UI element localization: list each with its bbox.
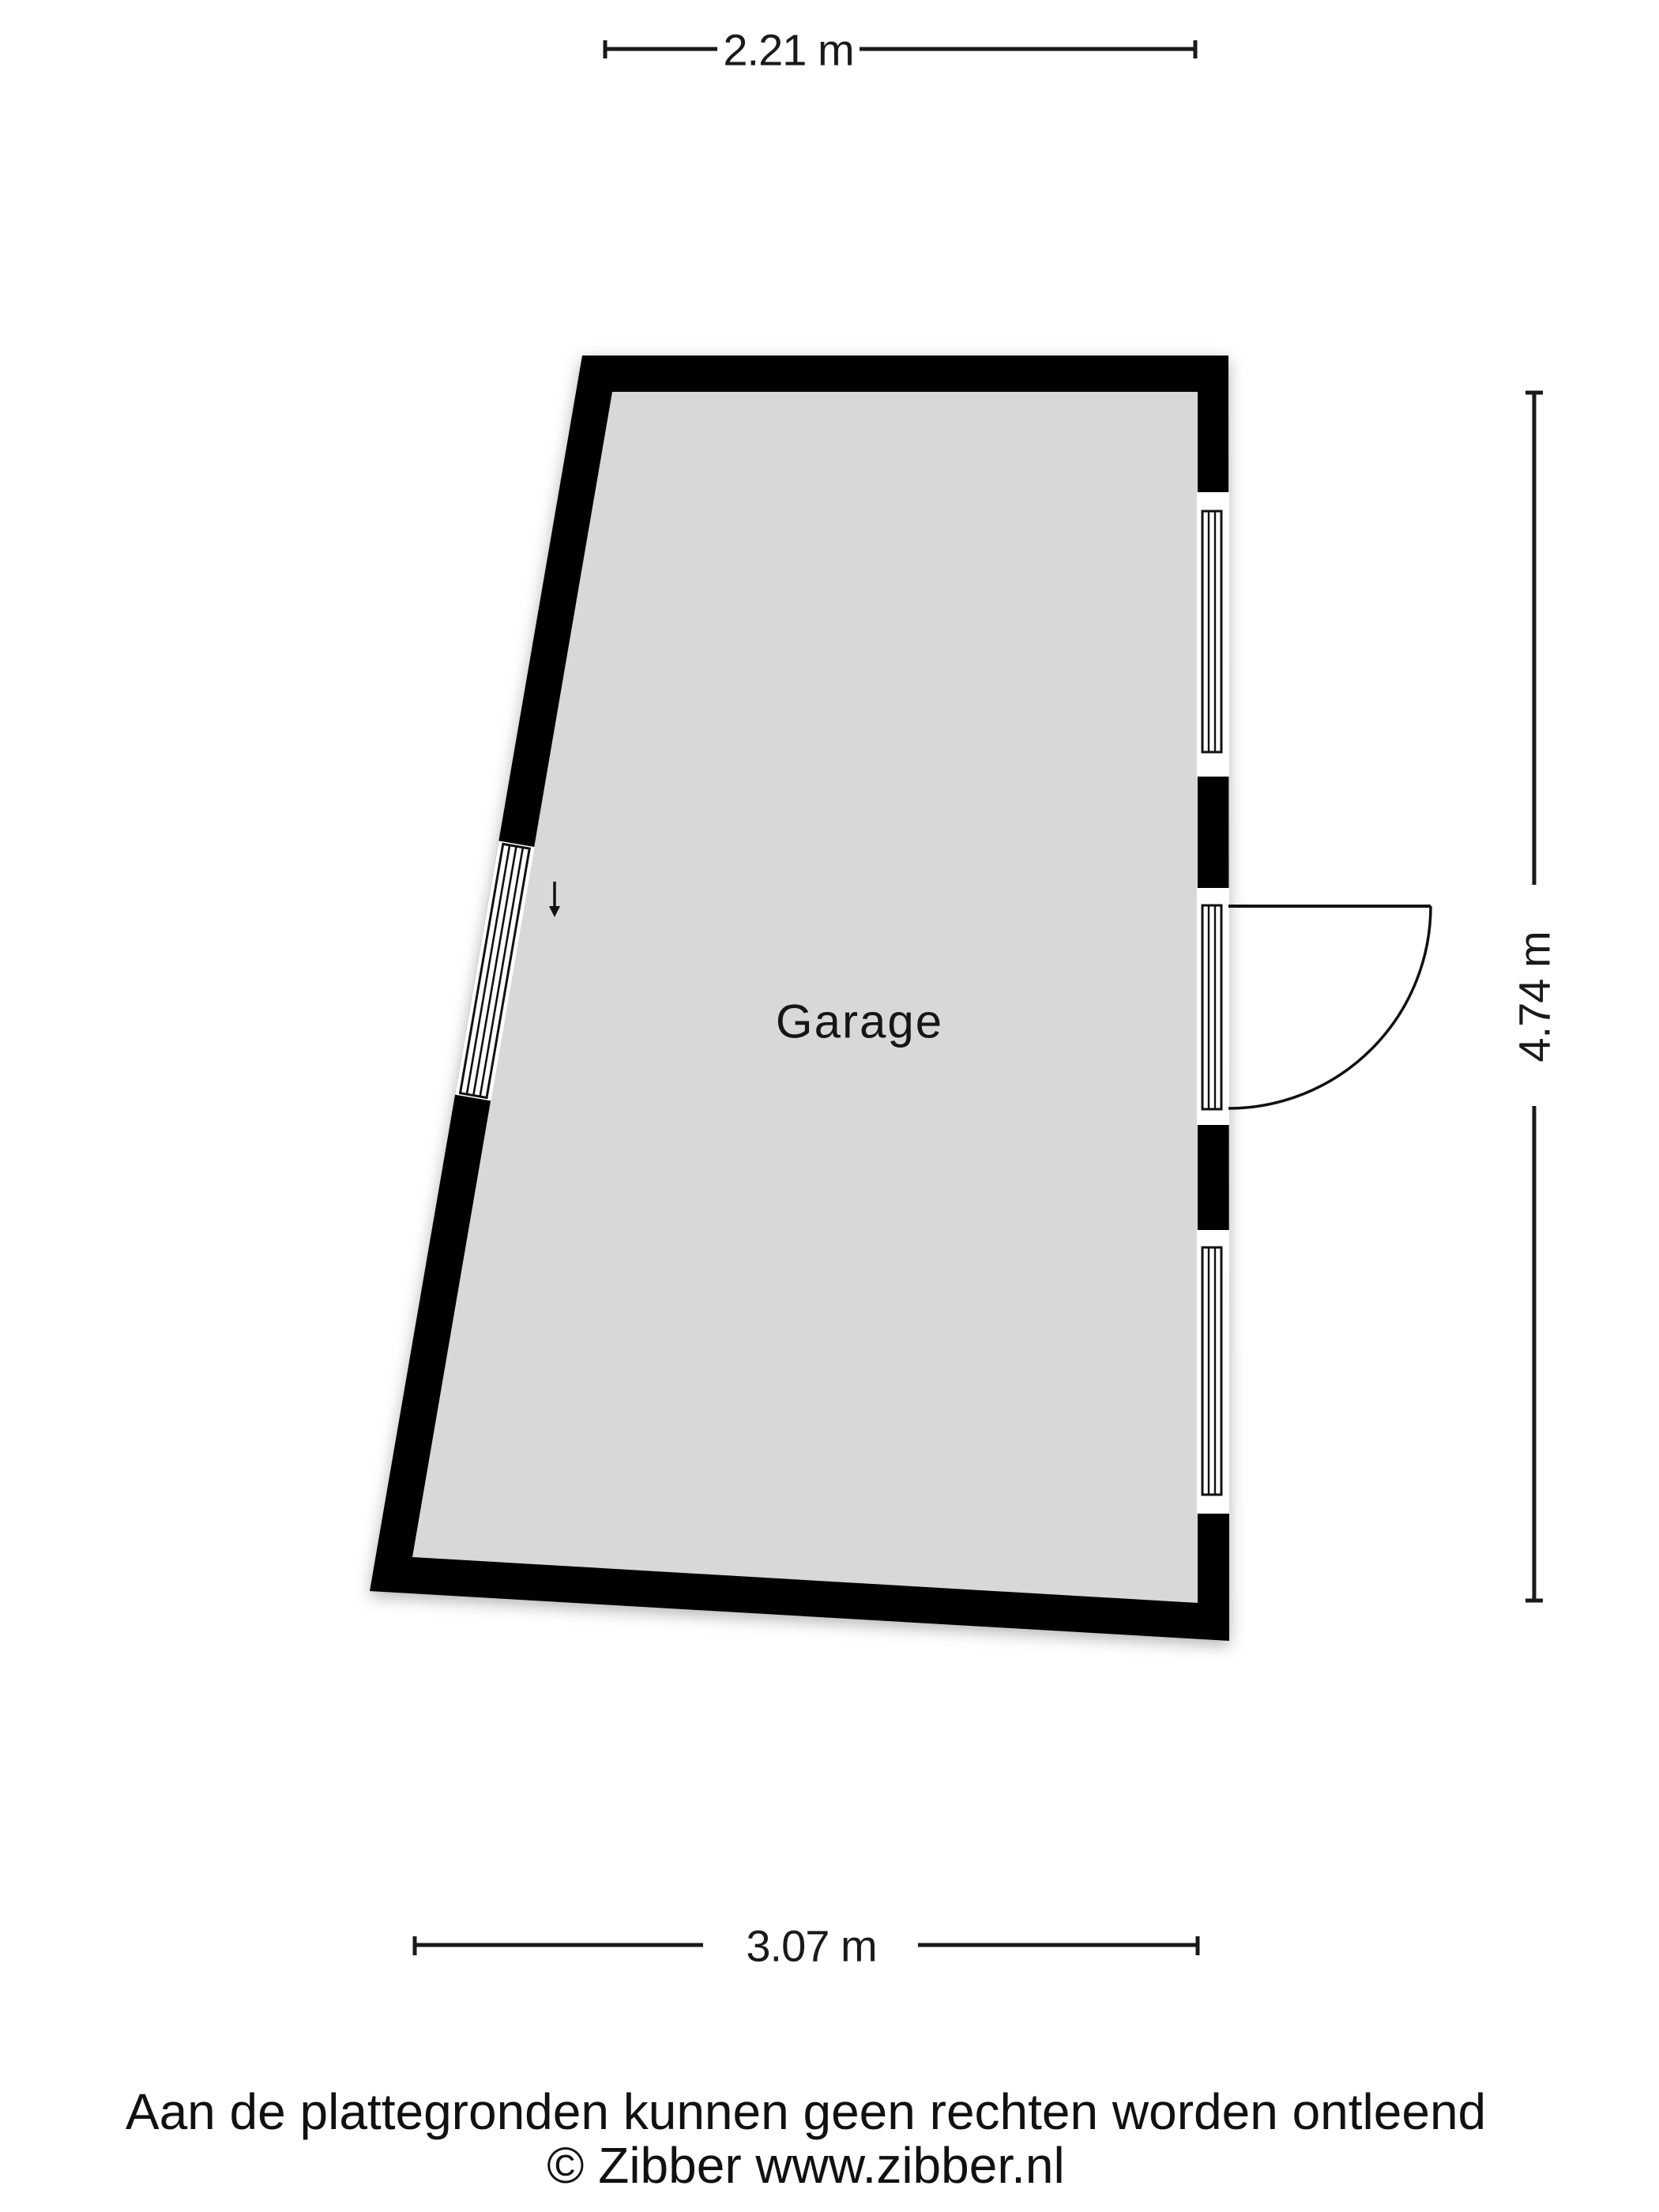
window-glass-frame bbox=[1202, 511, 1221, 752]
floorplan-canvas bbox=[0, 0, 1659, 2212]
door-glass-frame bbox=[1202, 905, 1221, 1109]
door-swing-arc bbox=[1228, 906, 1431, 1108]
floorplan-page: 2.21 m 4.74 m 3.07 m Garage Aan de platt… bbox=[0, 0, 1659, 2212]
room-label: Garage bbox=[776, 995, 943, 1049]
dimension-label-right: 4.74 m bbox=[1509, 931, 1560, 1062]
window-right-top bbox=[1197, 492, 1229, 777]
door-right bbox=[1197, 888, 1431, 1125]
copyright-text: © Zibber www.zibber.nl bbox=[547, 2136, 1064, 2195]
dimension-label-bottom: 3.07 m bbox=[746, 1920, 876, 1972]
dimension-label-top: 2.21 m bbox=[723, 24, 853, 76]
disclaimer-text: Aan de plattegronden kunnen geen rechten… bbox=[126, 2082, 1486, 2141]
window-right-bottom bbox=[1197, 1230, 1229, 1514]
window-glass-frame bbox=[1202, 1247, 1221, 1495]
dimension-top bbox=[605, 40, 1195, 58]
